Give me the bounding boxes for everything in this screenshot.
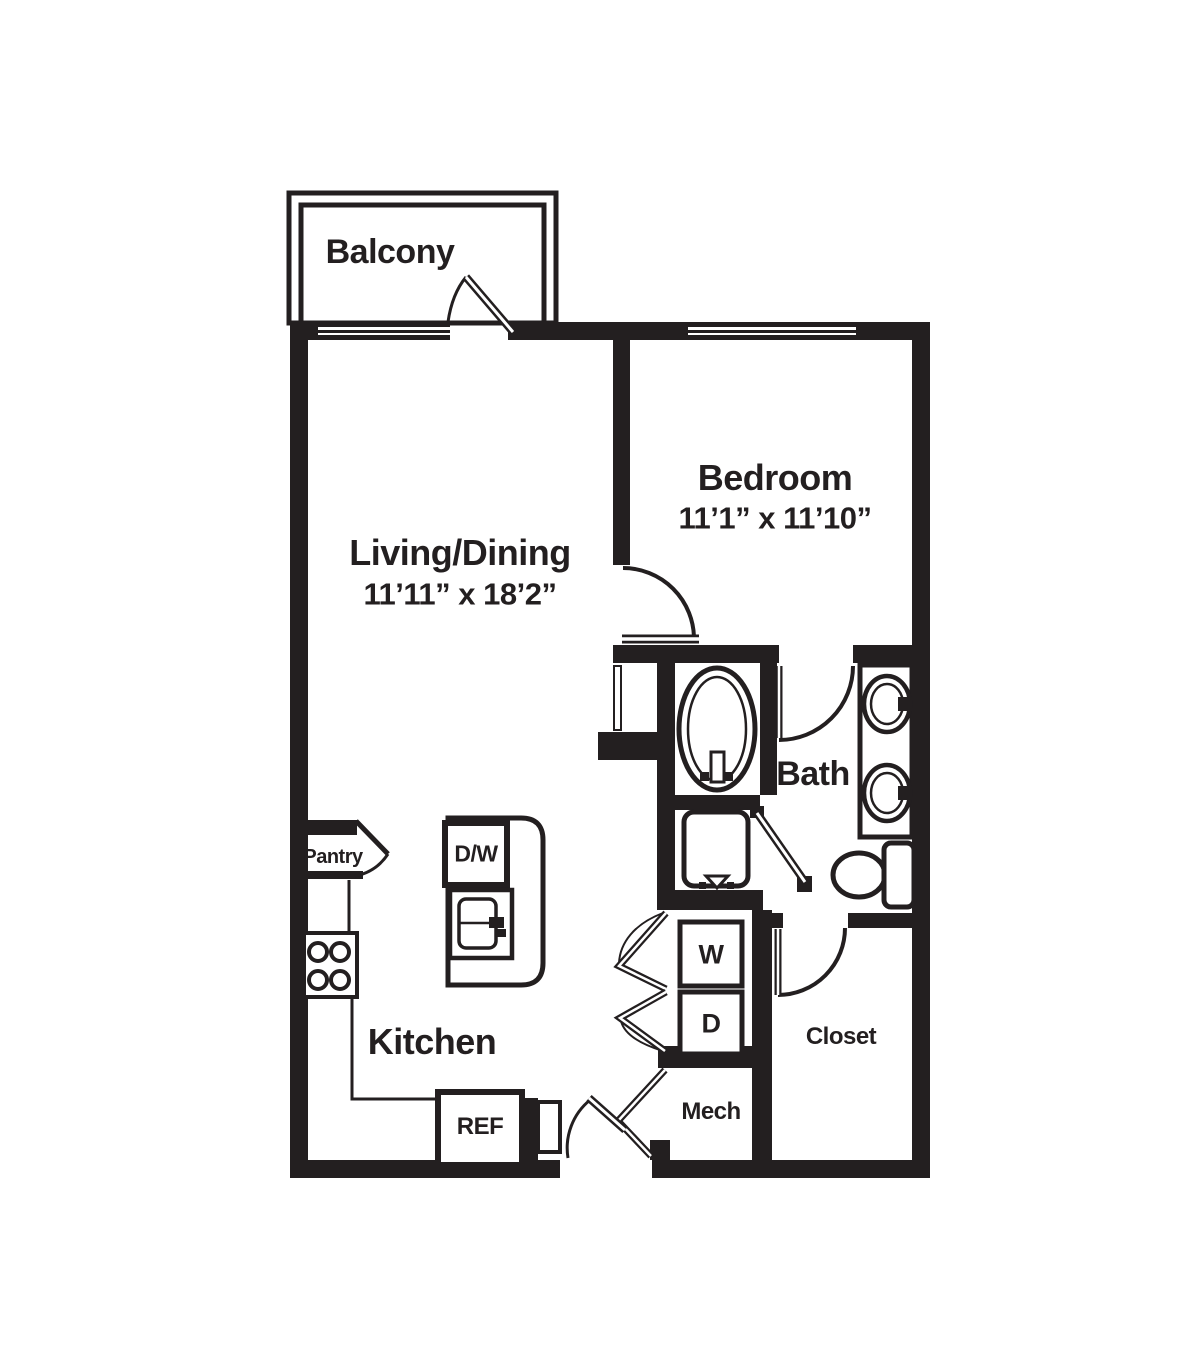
wall-closet-top (848, 913, 912, 928)
shower-door (757, 813, 805, 882)
balcony-window (316, 322, 450, 340)
wall-tub-bottom (675, 795, 760, 810)
wall-below-shower (657, 890, 763, 910)
wall-left (290, 322, 308, 1178)
bathtub (679, 668, 755, 790)
wall-right (912, 322, 930, 1178)
island-sink (450, 890, 512, 958)
bath-label: Bath (776, 757, 850, 791)
bedroom-label: Bedroom (698, 460, 853, 496)
wall-bottom-b (652, 1160, 930, 1178)
sink-1 (864, 676, 912, 732)
entry-door (567, 1098, 625, 1158)
wall-bedroom-bottom-b (853, 645, 930, 663)
washer-label: W (699, 942, 724, 969)
balcony-label: Balcony (326, 235, 455, 269)
floorplan-canvas: Balcony Living/Dining 11’11” x 18’2” Bed… (0, 0, 1202, 1352)
bedroom-window (688, 322, 856, 340)
wall-top-a (290, 322, 318, 340)
bedroom-dimensions: 11’1” x 11’10” (679, 503, 872, 534)
closet-label: Closet (806, 1025, 876, 1049)
stove (304, 933, 357, 997)
kitchen-label: Kitchen (368, 1024, 497, 1060)
living-dining-dimensions: 11’11” x 18’2” (364, 579, 557, 610)
entry-cabinet (538, 1102, 560, 1152)
dryer-label: D (702, 1011, 721, 1038)
wall-wd-closet (752, 910, 772, 1163)
living-dining-label: Living/Dining (349, 535, 570, 571)
refrigerator-label: REF (457, 1115, 504, 1139)
floorplan-drawing (0, 0, 1202, 1352)
wall-tub-right (760, 663, 777, 795)
closet-door (778, 928, 845, 995)
mech-label: Mech (681, 1100, 740, 1124)
wall-niche-bar (598, 732, 660, 760)
wall-tub-left (657, 663, 675, 910)
bedroom-door (622, 568, 699, 639)
wall-bedroom-living (613, 340, 630, 565)
toilet (833, 843, 914, 907)
pantry-label: Pantry (303, 847, 362, 867)
shower (684, 812, 748, 889)
bath-door (779, 666, 853, 740)
wall-mech-corner (650, 1140, 670, 1160)
laundry-bifold-doors (619, 913, 666, 1051)
sink-2 (864, 765, 912, 821)
wall-bedroom-bottom-a (613, 645, 779, 663)
wall-top-b (508, 322, 688, 340)
living-niche-opening (614, 666, 621, 730)
dishwasher-label: D/W (454, 843, 497, 866)
wall-closet-hinge (765, 913, 783, 928)
